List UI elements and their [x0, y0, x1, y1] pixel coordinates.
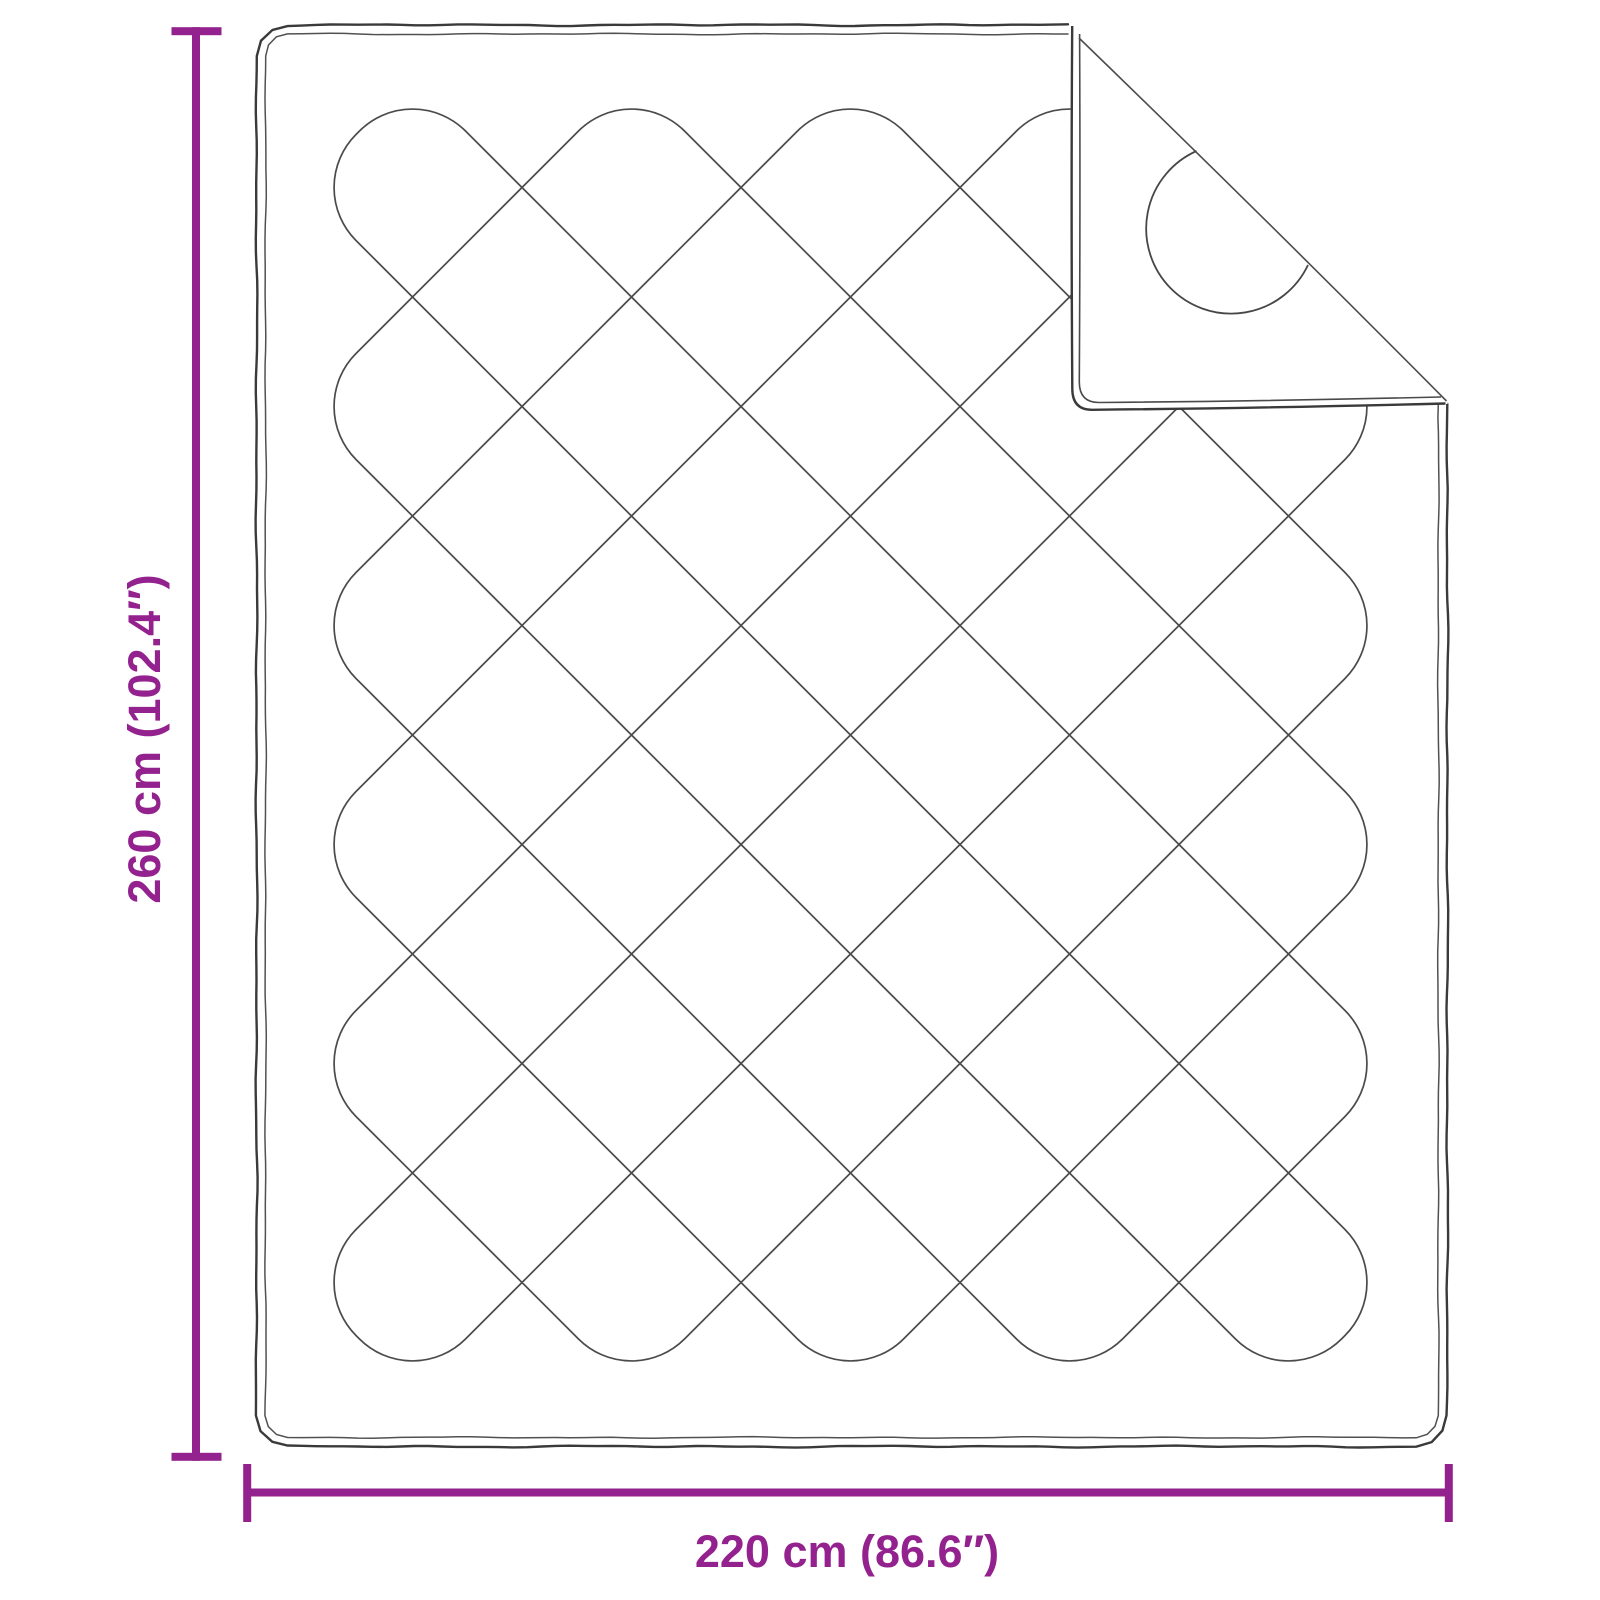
svg-text:260 cm (102.4″): 260 cm (102.4″) [119, 574, 170, 903]
svg-text:220 cm (86.6″): 220 cm (86.6″) [695, 1526, 999, 1577]
